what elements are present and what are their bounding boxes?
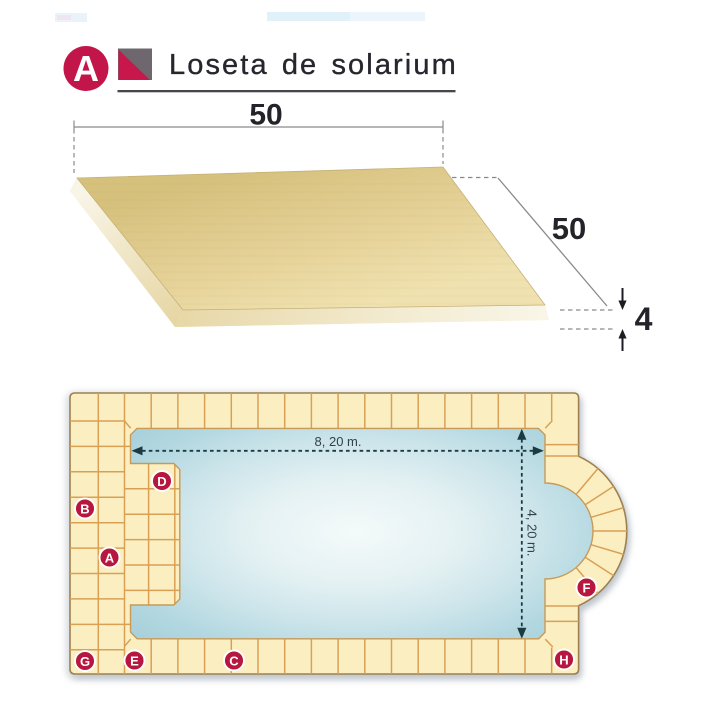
svg-text:50: 50: [552, 211, 586, 246]
svg-text:F: F: [583, 581, 591, 596]
svg-text:C: C: [229, 654, 239, 669]
svg-text:Loseta de solarium: Loseta de solarium: [169, 49, 458, 81]
svg-text:A: A: [105, 551, 115, 566]
svg-text:A: A: [73, 48, 99, 89]
svg-text:E: E: [130, 654, 139, 669]
svg-text:D: D: [157, 474, 166, 489]
svg-text:4, 20 m.: 4, 20 m.: [525, 510, 540, 557]
svg-text:B: B: [80, 502, 89, 517]
svg-text:4: 4: [635, 301, 653, 337]
svg-text:G: G: [80, 654, 90, 669]
svg-text:H: H: [559, 653, 568, 668]
svg-text:8, 20 m.: 8, 20 m.: [315, 434, 362, 449]
svg-text:50: 50: [249, 99, 282, 132]
